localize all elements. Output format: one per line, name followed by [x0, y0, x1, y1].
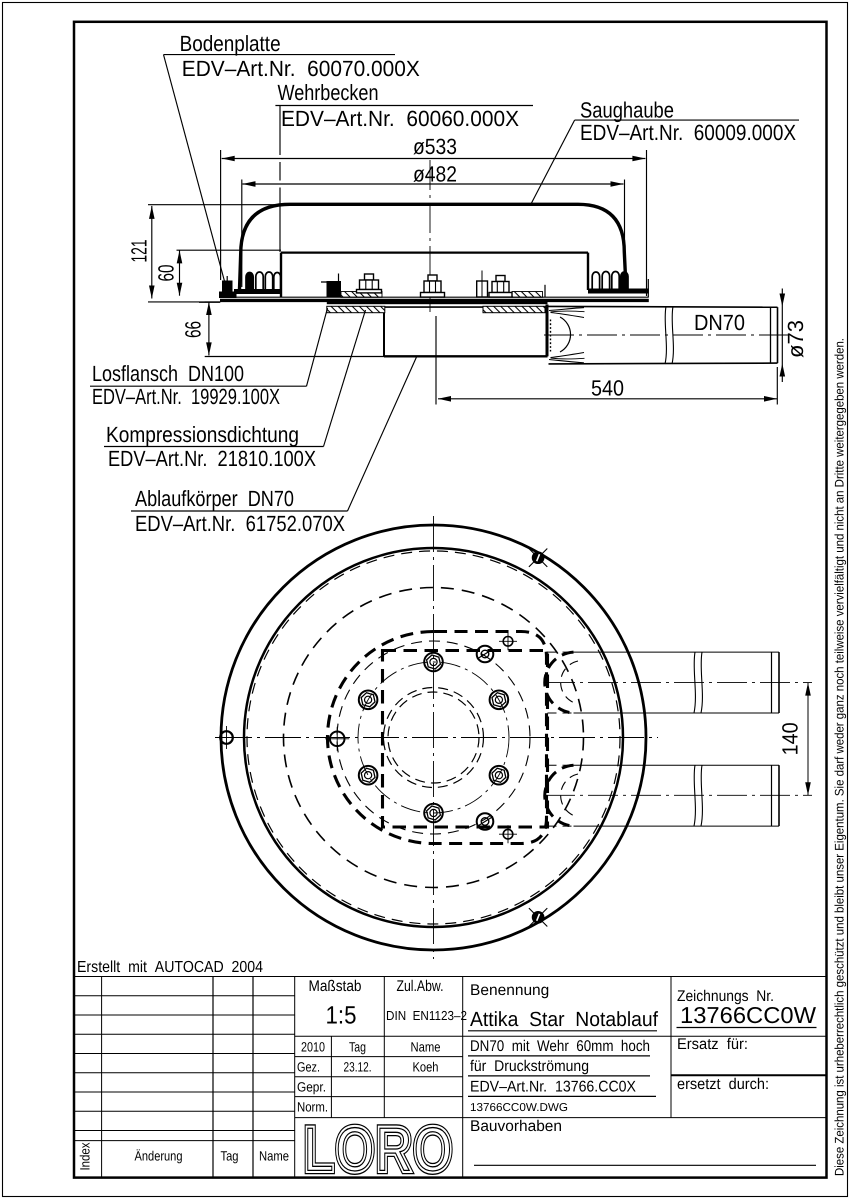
svg-text:Tag: Tag — [221, 1149, 239, 1164]
svg-text:Ersatz für:: Ersatz für: — [677, 1036, 748, 1053]
svg-text:EDV–Art.Nr. 61752.070X: EDV–Art.Nr. 61752.070X — [135, 511, 345, 536]
svg-text:Diese Zeichnung ist urheberrec: Diese Zeichnung ist urheberrechtlich ges… — [833, 338, 847, 1176]
svg-text:DN70 mit Wehr 60mm hoch: DN70 mit Wehr 60mm hoch — [470, 1038, 650, 1055]
svg-text:EDV–Art.Nr. 21810.100X: EDV–Art.Nr. 21810.100X — [108, 446, 316, 471]
svg-text:Ablaufkörper DN70: Ablaufkörper DN70 — [135, 486, 294, 511]
svg-text:Benennung: Benennung — [470, 982, 549, 999]
svg-text:Änderung: Änderung — [135, 1149, 183, 1164]
svg-text:LORO: LORO — [303, 1112, 453, 1186]
svg-text:EDV–Art.Nr. 60070.000X: EDV–Art.Nr. 60070.000X — [182, 56, 420, 81]
svg-text:13766CC0W.DWG: 13766CC0W.DWG — [470, 1102, 568, 1114]
svg-text:EDV–Art.Nr. 19929.100X: EDV–Art.Nr. 19929.100X — [92, 384, 280, 409]
svg-text:ø533: ø533 — [413, 134, 457, 159]
svg-text:Erstellt mit AUTOCAD 2004: Erstellt mit AUTOCAD 2004 — [77, 959, 263, 976]
svg-text:66: 66 — [181, 321, 206, 338]
svg-text:DIN EN1123–2: DIN EN1123–2 — [386, 1008, 467, 1023]
svg-text:Zul.Abw.: Zul.Abw. — [397, 978, 444, 995]
svg-text:ersetzt durch:: ersetzt durch: — [677, 1076, 769, 1093]
svg-text:1:5: 1:5 — [326, 1002, 357, 1030]
svg-text:Maßstab: Maßstab — [309, 978, 362, 995]
svg-text:ø73: ø73 — [783, 320, 808, 358]
svg-text:Name: Name — [259, 1149, 289, 1164]
svg-text:EDV–Art.Nr. 60009.000X: EDV–Art.Nr. 60009.000X — [580, 120, 796, 145]
svg-text:540: 540 — [591, 376, 624, 401]
svg-text:DN70: DN70 — [694, 310, 745, 335]
svg-text:EDV–Art.Nr. 60060.000X: EDV–Art.Nr. 60060.000X — [281, 106, 519, 131]
svg-text:121: 121 — [127, 240, 152, 263]
svg-text:Koeh: Koeh — [413, 1060, 439, 1075]
svg-text:Gepr.: Gepr. — [297, 1080, 326, 1095]
svg-text:Name: Name — [411, 1040, 441, 1055]
svg-text:2010: 2010 — [301, 1040, 325, 1055]
svg-text:13766CC0W: 13766CC0W — [680, 1002, 816, 1028]
svg-text:für Druckströmung: für Druckströmung — [470, 1058, 589, 1075]
svg-text:140: 140 — [778, 722, 803, 755]
svg-text:Kompressionsdichtung: Kompressionsdichtung — [106, 422, 299, 447]
svg-text:Bauvorhaben: Bauvorhaben — [470, 1118, 562, 1135]
svg-text:23.12.: 23.12. — [344, 1060, 372, 1075]
svg-text:Index: Index — [78, 1142, 93, 1170]
svg-text:Wehrbecken: Wehrbecken — [278, 80, 379, 105]
svg-text:Saughaube: Saughaube — [580, 98, 674, 123]
svg-text:Attika Star Notablauf: Attika Star Notablauf — [470, 1008, 658, 1031]
svg-text:ø482: ø482 — [413, 162, 457, 187]
svg-text:Tag: Tag — [349, 1040, 366, 1055]
svg-text:60: 60 — [153, 265, 178, 282]
svg-text:Losflansch DN100: Losflansch DN100 — [92, 361, 244, 386]
svg-text:Gez.: Gez. — [297, 1060, 320, 1075]
svg-text:EDV–Art.Nr. 13766.CC0X: EDV–Art.Nr. 13766.CC0X — [470, 1079, 637, 1096]
svg-text:Bodenplatte: Bodenplatte — [180, 31, 281, 56]
